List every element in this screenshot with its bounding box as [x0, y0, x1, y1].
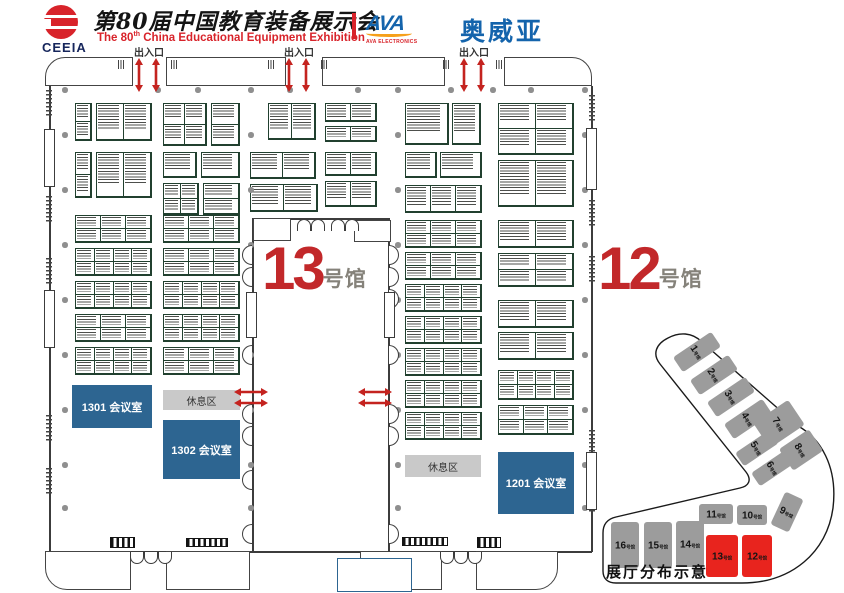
hall-13-suffix: 号馆: [323, 263, 367, 295]
booth: [75, 281, 152, 309]
booth: [498, 103, 574, 155]
door-arc-icon: [242, 267, 252, 287]
corridor-arrow-icon: [234, 383, 268, 391]
booth: [498, 332, 574, 360]
booth: [452, 103, 481, 145]
door-arc-icon: [389, 345, 399, 365]
pillar-dot: [248, 505, 254, 511]
entrance-label: 出入口: [132, 44, 166, 59]
pillar-dot: [62, 297, 68, 303]
booth: [250, 184, 318, 212]
booth: [75, 314, 152, 342]
booth: [405, 252, 482, 280]
booth: [498, 405, 574, 435]
booth: [163, 103, 207, 146]
hall-distribution-minimap: 1号馆2号馆3号馆4号馆5号馆6号馆7号馆8号馆9号馆10号馆11号馆12号馆1…: [600, 330, 844, 593]
entrance-label: 出入口: [457, 44, 491, 59]
entrance-label: 出入口: [282, 44, 316, 59]
pillar-dot: [395, 462, 401, 468]
wall-pillar: [586, 452, 597, 510]
door-zigzag-icon: [46, 468, 52, 496]
door-zigzag-icon: [46, 196, 52, 224]
booth: [75, 215, 152, 243]
door-zigzag-icon: [46, 90, 52, 118]
pillar-dot: [248, 462, 254, 468]
minimap-hall-13: 13号馆: [706, 535, 738, 577]
booth: [405, 412, 482, 440]
pillar-dot: [248, 187, 254, 193]
booth: [498, 220, 574, 248]
hall-13-label: 13 号馆: [262, 243, 367, 295]
corridor-pillar: [384, 292, 395, 338]
minimap-hall-11: 11号馆: [699, 504, 733, 524]
door-tick-icon: [321, 60, 328, 69]
pillar-dot: [582, 352, 588, 358]
minimap-caption: 展厅分布示意: [606, 561, 708, 582]
booth: [405, 380, 482, 408]
door-arc-icon: [389, 524, 399, 544]
pillar-dot: [62, 505, 68, 511]
corridor-arrow-icon: [234, 394, 268, 402]
pillar-dot: [490, 87, 496, 93]
corridor-pillar: [246, 292, 257, 338]
door-arc-icon: [242, 245, 252, 265]
escalator-icon: [110, 537, 135, 548]
escalator-icon: [186, 538, 228, 547]
pillar-dot: [395, 187, 401, 193]
booth: [163, 281, 240, 309]
booth: [96, 152, 152, 198]
conference-room-1302: 1302 会议室: [163, 420, 240, 479]
booth: [201, 152, 240, 178]
pillar-dot: [62, 462, 68, 468]
pillar-dot: [62, 407, 68, 413]
booth: [325, 181, 377, 207]
booth: [325, 152, 377, 176]
entrance-arrow-icon: [477, 58, 485, 92]
door-arc-icon: [389, 245, 399, 265]
rest-area-hall13: 休息区: [163, 390, 240, 410]
pillar-dot: [195, 87, 201, 93]
door-zigzag-icon: [589, 200, 595, 228]
pillar-dot: [248, 87, 254, 93]
booth: [405, 316, 482, 344]
booth: [498, 253, 574, 287]
booth: [405, 284, 482, 312]
double-door-icon: [297, 218, 359, 236]
booth: [75, 248, 152, 276]
conference-room-1201: 1201 会议室: [498, 452, 574, 514]
corridor-arrow-icon: [358, 394, 392, 402]
door-tick-icon: [268, 60, 275, 69]
booth: [75, 152, 92, 198]
pillar-dot: [248, 132, 254, 138]
wall-pillar: [44, 290, 55, 348]
door-arc-icon: [242, 345, 252, 365]
booth: [405, 185, 482, 213]
booth: [268, 103, 316, 140]
pillar-dot: [582, 407, 588, 413]
door-tick-icon: [443, 60, 450, 69]
booth: [203, 183, 240, 215]
door-zigzag-icon: [46, 258, 52, 286]
corridor-arrow-icon: [358, 383, 392, 391]
door-tick-icon: [496, 60, 503, 69]
wall-pillar: [44, 129, 55, 187]
escalator-icon: [477, 537, 501, 548]
pillar-dot: [528, 87, 534, 93]
entrance-arrow-icon: [460, 58, 468, 92]
booth: [163, 215, 240, 243]
door-arc-icon: [389, 267, 399, 287]
pillar-dot: [448, 87, 454, 93]
booth: [405, 220, 482, 248]
door-arc-icon: [389, 426, 399, 446]
booth: [405, 103, 449, 145]
booth: [163, 347, 240, 375]
booth: [163, 248, 240, 276]
booth: [325, 103, 377, 122]
pillar-dot: [395, 132, 401, 138]
booth: [96, 103, 152, 141]
pillar-dot: [395, 87, 401, 93]
pillar-dot: [62, 352, 68, 358]
hall-12-number: 12: [598, 243, 659, 295]
escalator-icon: [402, 537, 448, 546]
booth: [163, 152, 197, 178]
pillar-dot: [582, 297, 588, 303]
door-arc-icon: [242, 426, 252, 446]
pillar-dot: [395, 242, 401, 248]
booth: [405, 348, 482, 376]
booth: [75, 347, 152, 375]
floor-plan-page: CEEIA 第80届中国教育装备展示会 The 80th China Educa…: [0, 0, 844, 593]
wall-pillar: [586, 128, 597, 190]
door-arc-icon: [242, 470, 252, 490]
stage-box: [337, 558, 412, 592]
pillar-dot: [62, 87, 68, 93]
booth: [405, 152, 437, 178]
pillar-dot: [395, 505, 401, 511]
booth: [498, 160, 574, 207]
pillar-dot: [582, 242, 588, 248]
booth: [498, 300, 574, 328]
booth: [211, 103, 240, 146]
pillar-dot: [62, 132, 68, 138]
door-arc-icon: [242, 404, 252, 424]
rest-area-hall12: 休息区: [405, 455, 481, 477]
pillar-dot: [582, 87, 588, 93]
pillar-dot: [62, 187, 68, 193]
door-zigzag-icon: [589, 95, 595, 123]
booth: [325, 126, 377, 142]
booth: [498, 370, 574, 400]
door-zigzag-icon: [589, 256, 595, 284]
door-tick-icon: [171, 60, 178, 69]
hall-12-label: 12 号馆: [598, 243, 703, 295]
entrance-arrow-icon: [285, 58, 293, 92]
conference-room-1301: 1301 会议室: [72, 385, 152, 428]
door-tick-icon: [118, 60, 125, 69]
pillar-dot: [355, 87, 361, 93]
booth: [440, 152, 482, 178]
booth: [163, 314, 240, 342]
hall-13-number: 13: [262, 243, 323, 295]
minimap-hall-12: 12号馆: [742, 535, 772, 577]
hall-12-suffix: 号馆: [659, 263, 703, 295]
pillar-dot: [62, 242, 68, 248]
entrance-arrow-icon: [302, 58, 310, 92]
entrance-arrow-icon: [152, 58, 160, 92]
entrance-arrow-icon: [135, 58, 143, 92]
booth: [250, 152, 316, 179]
booth: [163, 183, 199, 215]
door-zigzag-icon: [46, 415, 52, 443]
minimap-hall-10: 10号馆: [737, 505, 767, 525]
booth: [75, 103, 92, 141]
door-arc-icon: [242, 524, 252, 544]
